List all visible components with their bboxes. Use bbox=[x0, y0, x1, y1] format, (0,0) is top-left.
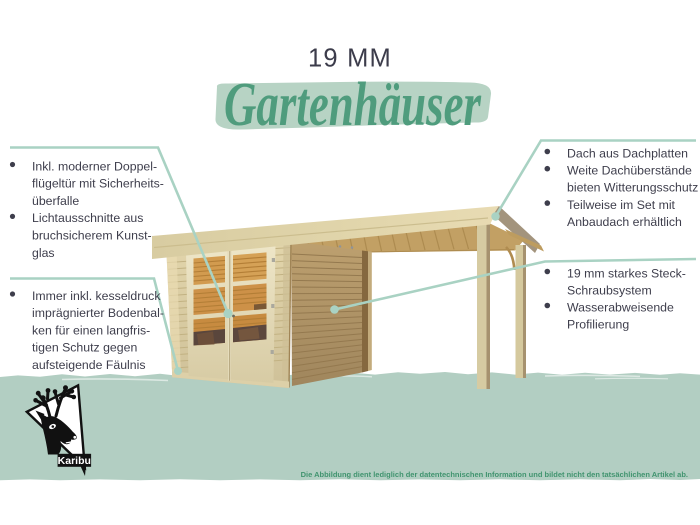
svg-text:glas: glas bbox=[32, 246, 55, 260]
svg-text:Profilierung: Profilierung bbox=[567, 318, 629, 332]
svg-text:bieten Witterungsschutz: bieten Witterungsschutz bbox=[567, 181, 698, 195]
svg-text:Anbaudach erhältlich: Anbaudach erhältlich bbox=[567, 215, 682, 229]
svg-text:Wasserabweisende: Wasserabweisende bbox=[567, 300, 674, 314]
svg-text:Die Abbildung dient lediglich: Die Abbildung dient lediglich der datent… bbox=[301, 470, 688, 479]
svg-text:19 MM: 19 MM bbox=[308, 45, 392, 73]
svg-text:Inkl. moderner Doppel-: Inkl. moderner Doppel- bbox=[32, 159, 157, 173]
svg-text:Gartenhäuser: Gartenhäuser bbox=[224, 71, 482, 139]
svg-text:Lichtausschnitte aus: Lichtausschnitte aus bbox=[32, 211, 143, 225]
svg-text:Schraubsystem: Schraubsystem bbox=[567, 284, 652, 298]
svg-text:Weite Dachüberstände: Weite Dachüberstände bbox=[567, 164, 692, 178]
svg-text:Teilweise im Set mit: Teilweise im Set mit bbox=[567, 198, 676, 212]
svg-text:tigen Schutz gegen: tigen Schutz gegen bbox=[32, 341, 137, 355]
svg-text:flügeltür mit Sicherheits-: flügeltür mit Sicherheits- bbox=[32, 177, 164, 191]
svg-text:Karibu: Karibu bbox=[58, 455, 91, 467]
svg-text:ken für einen langfris-: ken für einen langfris- bbox=[32, 323, 150, 337]
svg-text:imprägnierter Bodenbal-: imprägnierter Bodenbal- bbox=[32, 306, 164, 320]
svg-text:überfalle: überfalle bbox=[32, 194, 79, 208]
svg-text:bruchsicherem Kunst-: bruchsicherem Kunst- bbox=[32, 229, 152, 243]
svg-text:aufsteigende Fäulnis: aufsteigende Fäulnis bbox=[32, 358, 145, 372]
svg-text:Dach aus Dachplatten: Dach aus Dachplatten bbox=[567, 146, 688, 160]
svg-text:Immer inkl. kesseldruck: Immer inkl. kesseldruck bbox=[32, 289, 161, 303]
svg-text:19 mm starkes Steck-: 19 mm starkes Steck- bbox=[567, 266, 686, 280]
